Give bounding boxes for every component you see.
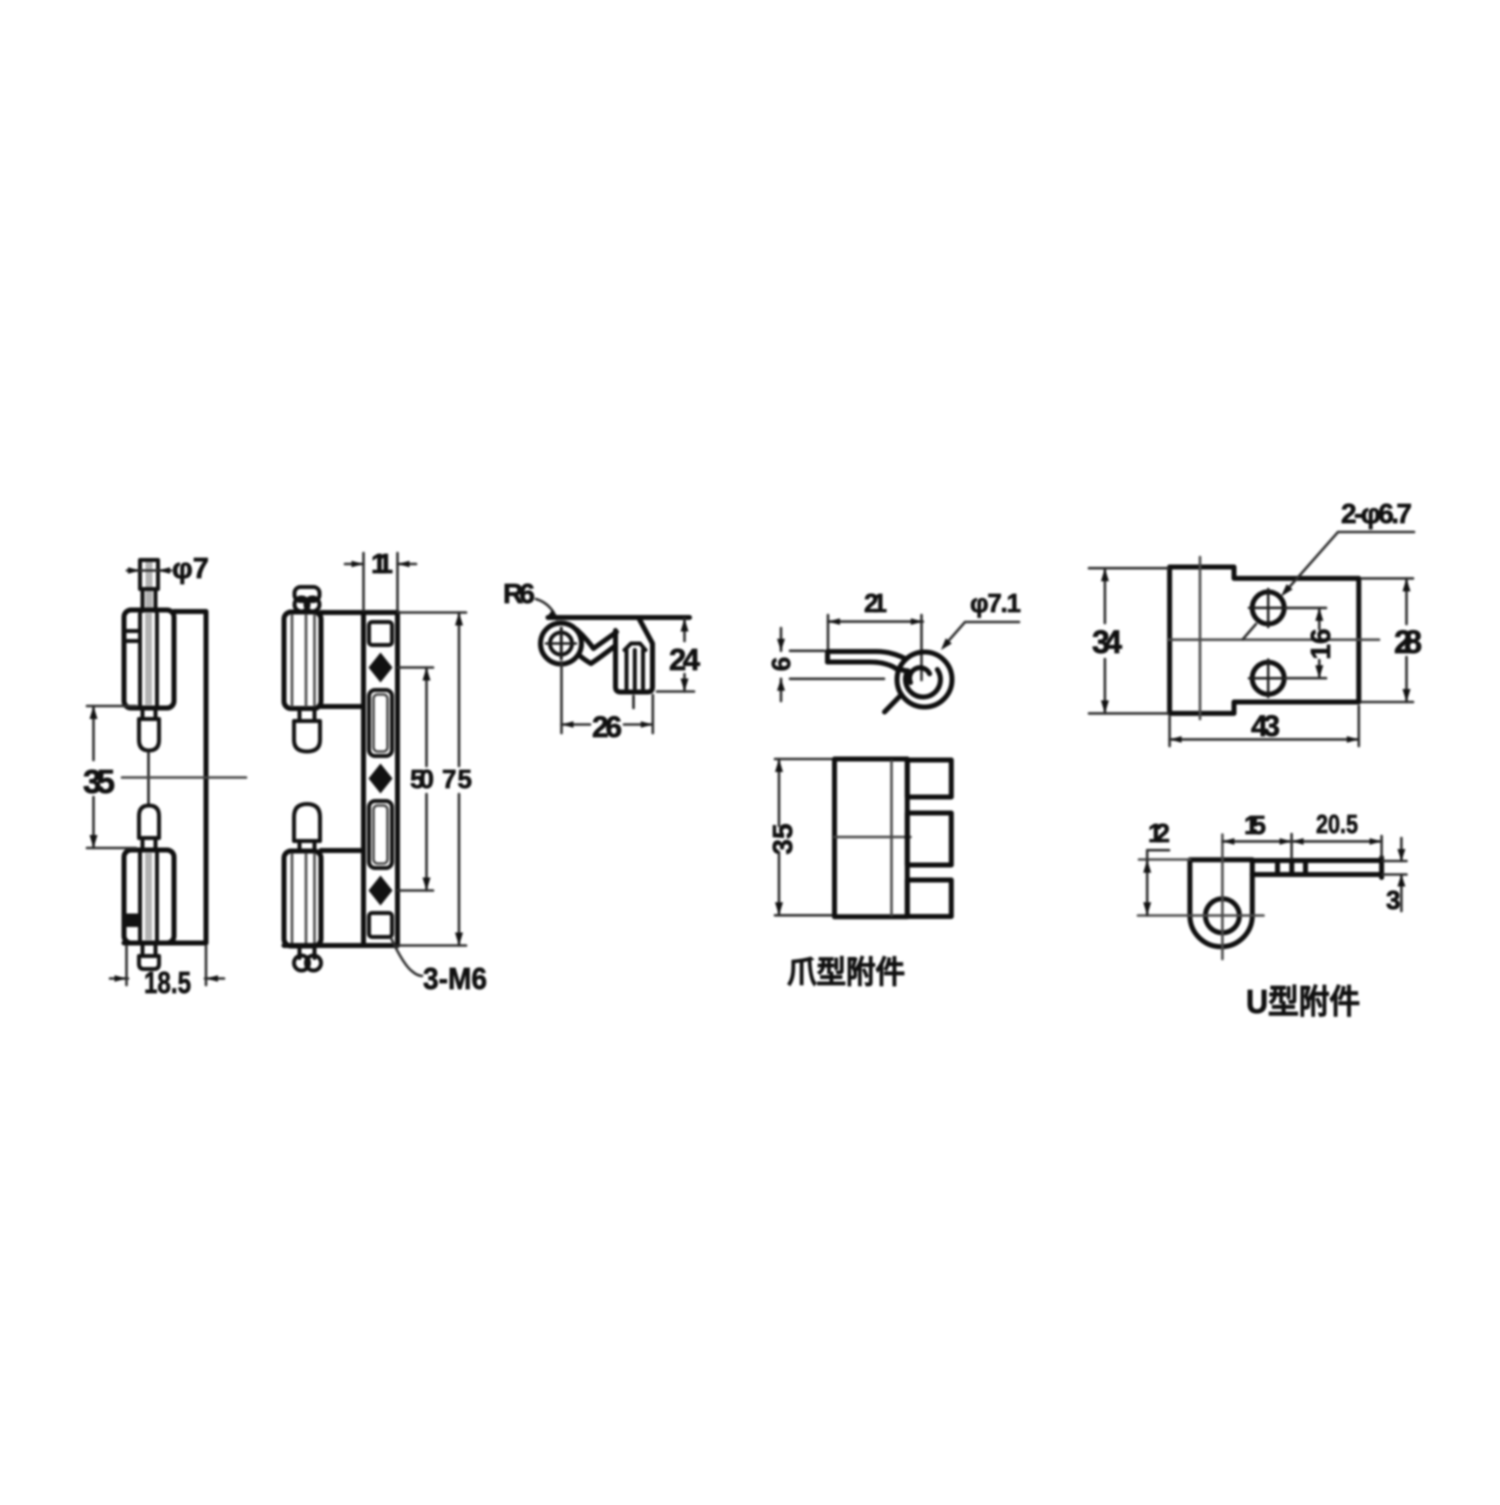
svg-text:21: 21 xyxy=(864,588,887,618)
svg-text:16: 16 xyxy=(1305,628,1336,659)
svg-text:爪型附件: 爪型附件 xyxy=(787,955,905,990)
svg-text:R6: R6 xyxy=(503,578,535,609)
svg-text:26: 26 xyxy=(592,711,622,744)
svg-text:12: 12 xyxy=(1148,818,1170,848)
svg-text:3-M6: 3-M6 xyxy=(423,961,487,996)
svg-text:11: 11 xyxy=(371,548,393,579)
svg-text:75: 75 xyxy=(442,764,472,794)
svg-text:φ7.1: φ7.1 xyxy=(970,588,1021,618)
svg-text:34: 34 xyxy=(1092,624,1122,660)
svg-text:φ7: φ7 xyxy=(172,553,209,585)
svg-text:43: 43 xyxy=(1251,710,1280,743)
svg-text:6: 6 xyxy=(766,657,796,671)
svg-text:20.5: 20.5 xyxy=(1316,809,1358,839)
svg-text:18.5: 18.5 xyxy=(144,965,191,1000)
svg-text:24: 24 xyxy=(669,642,701,677)
svg-text:35: 35 xyxy=(83,763,115,800)
svg-text:3: 3 xyxy=(1386,885,1400,915)
svg-text:35: 35 xyxy=(767,823,798,854)
svg-text:U型附件: U型附件 xyxy=(1246,983,1360,1020)
svg-text:2-φ6.7: 2-φ6.7 xyxy=(1341,498,1412,529)
svg-text:28: 28 xyxy=(1394,624,1422,660)
svg-text:15: 15 xyxy=(1244,810,1266,840)
svg-text:50: 50 xyxy=(410,764,434,794)
